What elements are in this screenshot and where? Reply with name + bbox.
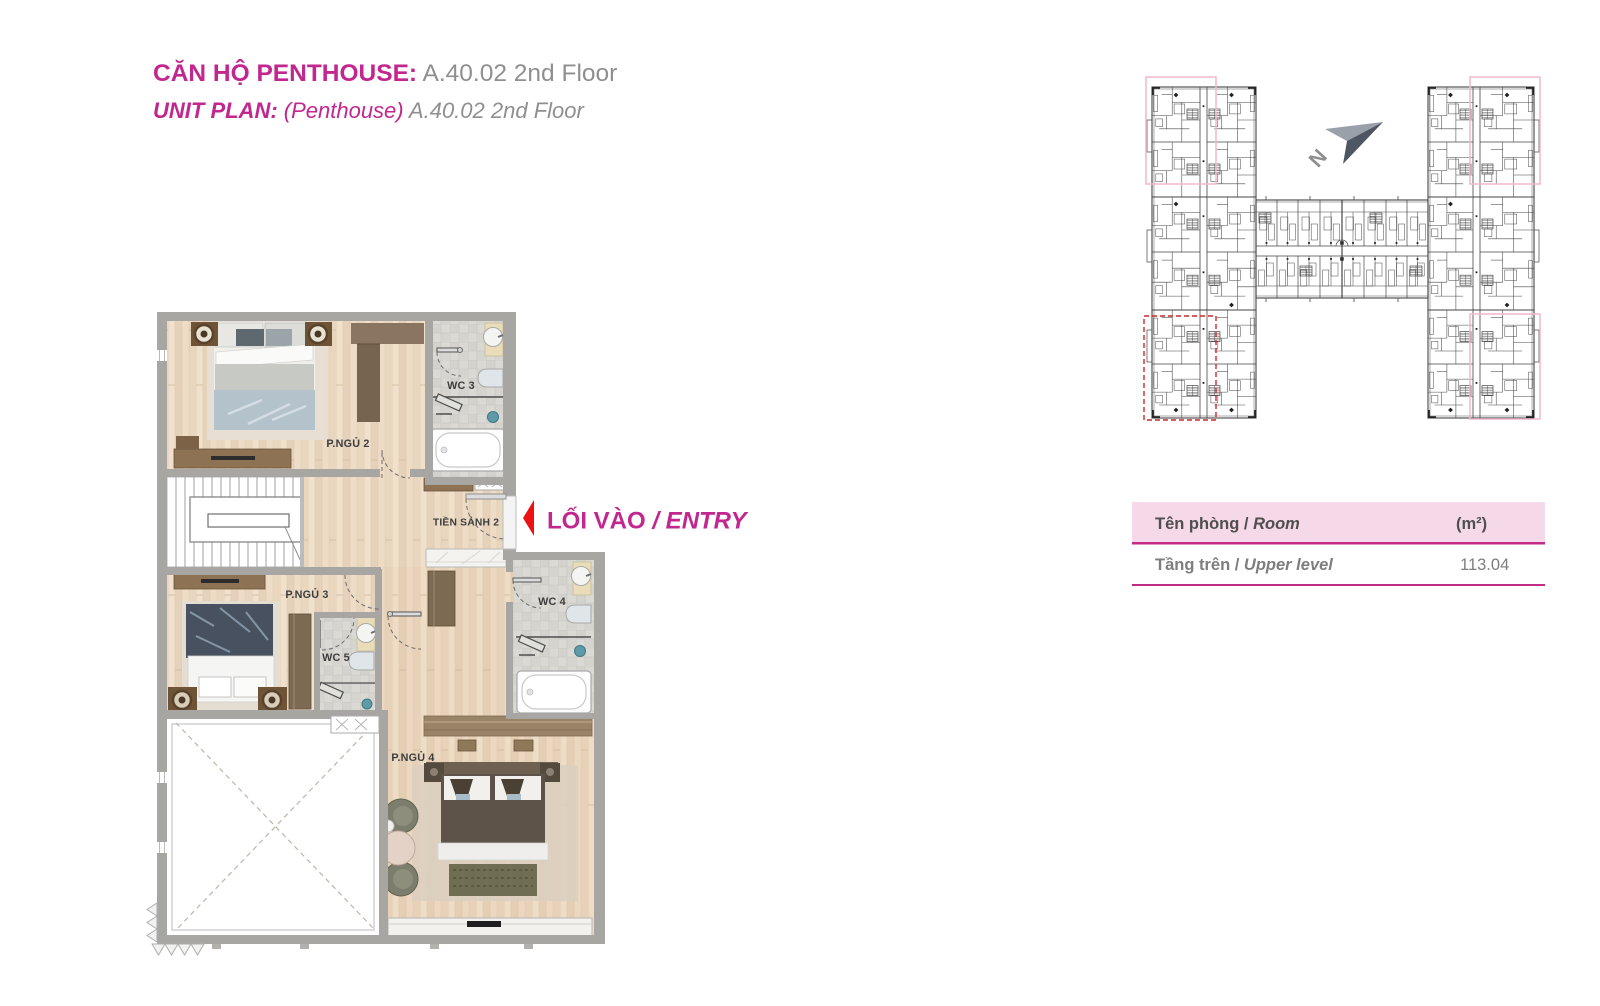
- svg-text:Tên phòng / Room: Tên phòng / Room: [1155, 515, 1300, 533]
- svg-text:UNIT PLAN: (Penthouse) A.40.02: UNIT PLAN: (Penthouse) A.40.02 2nd Floor: [153, 98, 585, 123]
- svg-text:113.04: 113.04: [1460, 556, 1509, 574]
- svg-text:WC 4: WC 4: [538, 596, 566, 608]
- svg-text:TIỀN SẢNH 2: TIỀN SẢNH 2: [433, 516, 499, 529]
- svg-text:WC 5: WC 5: [322, 652, 350, 664]
- svg-text:(m²): (m²): [1456, 515, 1487, 533]
- svg-text:CĂN HỘ PENTHOUSE: A.40.02 2nd: CĂN HỘ PENTHOUSE: A.40.02 2nd Floor: [153, 59, 617, 87]
- svg-text:WC 3: WC 3: [447, 380, 475, 392]
- svg-text:P.NGỦ 2: P.NGỦ 2: [326, 437, 369, 450]
- svg-text:P.NGỦ 3: P.NGỦ 3: [285, 588, 328, 601]
- svg-text:Tầng trên / Upper level: Tầng trên / Upper level: [1155, 556, 1333, 574]
- svg-text:LỐI VÀO / ENTRY: LỐI VÀO / ENTRY: [547, 507, 749, 535]
- svg-text:P.NGỦ 4: P.NGỦ 4: [391, 751, 434, 764]
